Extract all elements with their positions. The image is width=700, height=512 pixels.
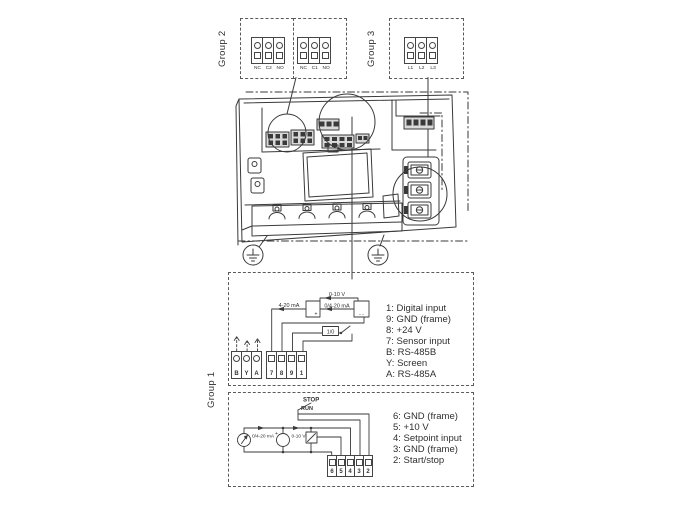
terminal-port-icon xyxy=(356,459,363,466)
legend-item: B: RS-485B xyxy=(386,347,451,358)
leader-line-group2 xyxy=(287,78,296,115)
terminal-port-icon xyxy=(268,355,275,362)
terminal-label: 3 xyxy=(357,469,360,475)
terminal-label: 9 xyxy=(290,371,293,377)
legend-item: 9: GND (frame) xyxy=(386,314,451,325)
terminal-cell xyxy=(416,38,427,63)
cable-gland xyxy=(299,205,315,219)
mains-terminal-block xyxy=(404,37,438,64)
legend-item: 1: Digital input xyxy=(386,303,451,314)
terminal-port-icon xyxy=(278,355,285,362)
terminal-cell: 1 xyxy=(297,352,306,378)
terminal-screw-icon xyxy=(418,42,425,49)
terminal-port-icon xyxy=(418,52,425,59)
legend-item: 8: +24 V xyxy=(386,325,451,336)
terminal-port-icon xyxy=(276,52,283,59)
terminal-label: 4 xyxy=(348,469,351,475)
terminal-screw-icon xyxy=(300,42,307,49)
terminal-label: Y xyxy=(244,371,248,377)
cable-gland-strip xyxy=(252,194,402,236)
terminal-label: 7 xyxy=(270,371,273,377)
terminal-cell xyxy=(274,38,284,63)
terminal-port-icon xyxy=(329,459,336,466)
terminal-screw-icon xyxy=(253,355,260,362)
terminal-cell: Y xyxy=(242,352,252,378)
terminal-screw-icon xyxy=(322,42,329,49)
terminal-port-icon xyxy=(300,52,307,59)
terminal-screw-icon xyxy=(407,42,414,49)
signal-terminal-strips xyxy=(317,117,434,148)
io-terminal-block: 7 8 9 1 xyxy=(266,351,307,379)
terminal-label: 8 xyxy=(280,371,283,377)
group1-label: Group 1 xyxy=(206,356,217,424)
terminal-port-icon xyxy=(338,459,345,466)
legend-item: Y: Screen xyxy=(386,358,451,369)
terminal-cell: A xyxy=(252,352,261,378)
legend-item: 3: GND (frame) xyxy=(393,444,462,455)
terminal-label: 2 xyxy=(366,469,369,475)
terminal-cell xyxy=(252,38,263,63)
legend-item: 5: +10 V xyxy=(393,422,462,433)
terminal-port-icon xyxy=(429,52,436,59)
terminal-port-icon xyxy=(298,355,305,362)
legend-item: 4: Setpoint input xyxy=(393,433,462,444)
earth-ground-icon xyxy=(243,236,267,265)
terminal-cell: B xyxy=(232,352,242,378)
relay2-terminal-block xyxy=(251,37,285,64)
terminal-cell xyxy=(263,38,274,63)
terminal-label: A xyxy=(254,371,258,377)
terminal-screw-icon xyxy=(429,42,436,49)
terminal-cell: 2 xyxy=(364,456,372,476)
terminal-cell: 6 xyxy=(328,456,337,476)
legend-item: 7: Sensor input xyxy=(386,336,451,347)
terminal-cell: 7 xyxy=(267,352,277,378)
group3-label: Group 3 xyxy=(366,20,377,78)
terminal-cell xyxy=(298,38,309,63)
hinge-tabs xyxy=(248,158,264,193)
terminal-screw-icon xyxy=(233,355,240,362)
terminal-port-icon xyxy=(365,459,372,466)
terminal-cell: 8 xyxy=(277,352,287,378)
enclosure-drawing xyxy=(236,92,470,265)
terminal-label: 6 xyxy=(330,469,333,475)
relay-terminal-strips xyxy=(266,130,314,147)
terminal-label: 1 xyxy=(300,371,303,377)
relay1-terminal-block xyxy=(297,37,331,64)
terminal-cell xyxy=(320,38,330,63)
terminal-cell xyxy=(405,38,416,63)
terminal-screw-icon xyxy=(254,42,261,49)
cable-gland xyxy=(359,204,375,218)
wiring-diagram-figure: NC C2 NO NC C1 NO L1 L2 L3 0-10 V 4-20 m… xyxy=(0,0,700,512)
legend-item: 2: Start/stop xyxy=(393,455,462,466)
terminal-port-icon xyxy=(322,52,329,59)
terminal-port-icon xyxy=(265,52,272,59)
terminal-cell: 9 xyxy=(287,352,297,378)
terminal-screw-icon xyxy=(276,42,283,49)
legend-item: A: RS-485A xyxy=(386,369,451,380)
cover-plate xyxy=(303,145,373,201)
lower-legend: 6: GND (frame) 5: +10 V 4: Setpoint inpu… xyxy=(393,411,462,466)
setpoint-terminal-block: 6 5 4 3 2 xyxy=(327,455,373,477)
terminal-cell xyxy=(309,38,320,63)
terminal-port-icon xyxy=(407,52,414,59)
terminal-label: B xyxy=(234,371,238,377)
terminal-screw-icon xyxy=(311,42,318,49)
terminal-label: 5 xyxy=(339,469,342,475)
bus-terminal-block: B Y A xyxy=(231,351,262,379)
terminal-screw-icon xyxy=(243,355,250,362)
legend-item: 6: GND (frame) xyxy=(393,411,462,422)
terminal-port-icon xyxy=(347,459,354,466)
terminal-cell xyxy=(427,38,437,63)
cable-gland xyxy=(269,205,285,219)
upper-legend: 1: Digital input 9: GND (frame) 8: +24 V… xyxy=(386,303,451,380)
terminal-cell: 3 xyxy=(355,456,364,476)
terminal-cell: 5 xyxy=(337,456,346,476)
terminal-port-icon xyxy=(288,355,295,362)
terminal-port-icon xyxy=(311,52,318,59)
group2-label: Group 2 xyxy=(217,20,228,78)
terminal-port-icon xyxy=(254,52,261,59)
terminal-cell: 4 xyxy=(346,456,355,476)
terminal-screw-icon xyxy=(265,42,272,49)
earth-ground-icon xyxy=(368,235,388,265)
cable-gland xyxy=(329,204,345,218)
